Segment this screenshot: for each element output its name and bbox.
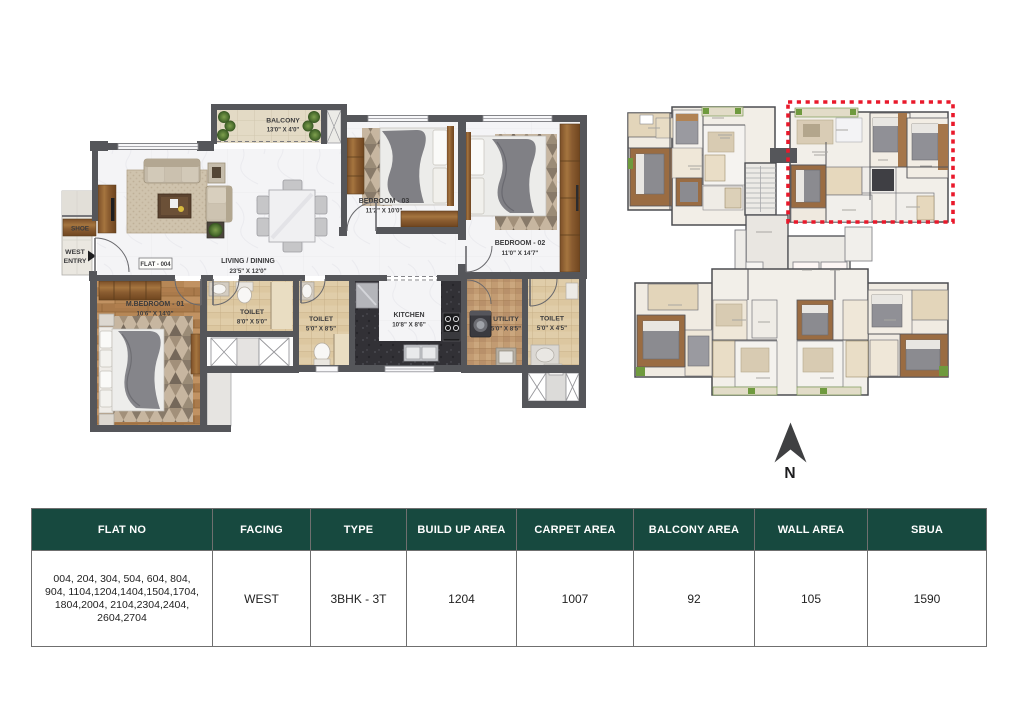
- svg-text:N: N: [784, 465, 795, 482]
- svg-text:8'0" X 5'0": 8'0" X 5'0": [237, 319, 267, 326]
- svg-text:BALCONY: BALCONY: [266, 118, 300, 125]
- svg-text:11'0" X 14'7": 11'0" X 14'7": [502, 250, 539, 257]
- svg-text:UTILITY: UTILITY: [493, 316, 519, 323]
- svg-text:ENTRY: ENTRY: [64, 258, 87, 265]
- svg-text:KITCHEN: KITCHEN: [393, 312, 424, 319]
- svg-text:13'0" X 4'0": 13'0" X 4'0": [267, 128, 300, 134]
- svg-text:M.BEDROOM - 01: M.BEDROOM - 01: [126, 301, 184, 308]
- svg-text:WEST: WEST: [65, 249, 85, 256]
- svg-text:5'0" X 8'5": 5'0" X 8'5": [491, 326, 521, 333]
- svg-text:5'0" X 4'5": 5'0" X 4'5": [537, 325, 567, 332]
- svg-text:10'6" X 14'0": 10'6" X 14'0": [136, 311, 173, 318]
- svg-text:FLAT - 004: FLAT - 004: [140, 262, 171, 268]
- svg-text:TOILET: TOILET: [309, 316, 334, 323]
- svg-text:SHOE: SHOE: [71, 226, 90, 233]
- svg-text:LIVING / DINING: LIVING / DINING: [221, 258, 275, 265]
- svg-text:10'8" X 8'6": 10'8" X 8'6": [392, 322, 426, 329]
- svg-text:TOILET: TOILET: [240, 309, 265, 316]
- svg-text:11'2" X 10'0": 11'2" X 10'0": [366, 208, 403, 215]
- svg-text:TOILET: TOILET: [540, 316, 565, 323]
- svg-text:BEDROOM - 02: BEDROOM - 02: [495, 240, 546, 247]
- svg-text:23'5" X 12'0": 23'5" X 12'0": [229, 268, 266, 275]
- svg-text:5'0" X 8'5": 5'0" X 8'5": [306, 326, 336, 333]
